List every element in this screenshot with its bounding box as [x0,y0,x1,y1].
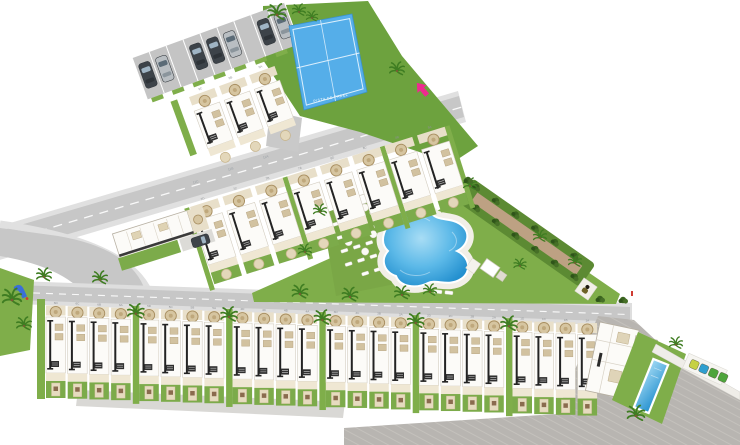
ridge-cap [299,328,305,330]
roof-ridge [49,321,51,369]
stairwell [51,361,59,367]
ridge-cap [91,321,97,323]
garden-table [97,388,102,393]
solarium-table-center [520,325,524,329]
ridge-cap [184,325,190,327]
solarium-table-center [334,319,338,323]
roof-ridge [488,335,490,383]
stairwell [116,363,124,369]
ridge-cap [234,374,240,376]
roof-ridge [143,324,145,372]
garden-table [448,400,453,405]
roof-ridge [422,333,424,381]
terrace-furniture [428,336,436,343]
ridge-cap [327,329,333,331]
stairwell [331,370,339,376]
stairwell [561,378,569,384]
ridge-cap [442,333,448,335]
solarium-table-center [542,326,546,330]
garden-table [190,391,195,396]
terrace-furniture [55,324,63,331]
unit-number: 3B [377,312,381,316]
ridge-cap [47,368,53,370]
ridge-cap [442,381,448,383]
rear-terrace [326,382,346,390]
ridge-cap [206,325,212,327]
terrace-furniture [120,326,128,333]
rear-terrace [139,376,159,384]
ridge-cap [299,376,305,378]
terrace-furniture [285,332,293,339]
rear-terrace [111,375,131,383]
rear-terrace [513,388,533,396]
roof-ridge [537,337,539,385]
garden-table [147,390,152,395]
terrace-furniture [120,336,128,343]
roof-ridge [114,323,116,371]
roof-ridge [351,331,353,379]
solarium-table-center [262,317,266,321]
unit-number: 9A [258,64,264,69]
stairwell [468,375,476,381]
terrace-furniture [450,337,458,344]
terrace-furniture [263,340,271,347]
ridge-cap [486,382,492,384]
ridge-cap [349,378,355,380]
terrace-furniture [148,327,156,334]
terrace-furniture [335,343,343,350]
rear-terrace [204,378,224,386]
garden-table [75,387,80,392]
garden-table [54,387,59,392]
site-plan: 11A11B11C [0,0,740,445]
garden-table [563,403,568,408]
stairwell [303,369,311,375]
terrace-furniture [242,330,250,337]
roof-ridge [236,327,238,375]
stairwell [374,372,382,378]
terrace-furniture [587,342,595,349]
ridge-cap [535,336,541,338]
terrace-furniture [148,337,156,344]
terrace-furniture [357,343,365,350]
garden-table [119,389,124,394]
unit-number: 9B [228,75,233,80]
rear-terrace [254,380,273,388]
terrace-furniture [522,339,530,346]
ridge-cap [371,379,377,381]
ridge-cap [514,335,520,337]
rear-terrace [183,378,203,386]
sun-lounger [445,291,453,295]
ridge-cap [162,372,168,374]
ridge-cap [47,320,53,322]
palm-tree-icon [37,268,51,281]
stairwell [396,372,404,378]
terrace-furniture [400,345,408,352]
solarium-table-center [449,323,453,327]
roof-ridge [93,322,95,370]
garden-table [492,401,497,406]
ridge-cap [464,382,470,384]
ridge-cap [162,324,168,326]
roof-ridge [71,322,73,370]
rear-terrace [391,384,411,392]
ridge-cap [371,331,377,333]
solarium-table-center [564,327,568,331]
site-plan-svg: 11A11B11C [0,0,740,445]
solarium-table-center [75,311,79,315]
unit-number: 1B [564,318,568,322]
rear-terrace [233,379,253,387]
terrace-furniture [170,337,178,344]
ridge-cap [349,330,355,332]
terrace-furniture [450,347,458,354]
solarium-table-center [147,313,151,317]
ridge-cap [256,375,262,377]
terrace-furniture [493,338,501,345]
garden-table [377,397,382,402]
ridge-cap [112,322,118,324]
terrace-furniture [472,338,480,345]
terrace-furniture [285,341,293,348]
garden-table [399,398,404,403]
ridge-cap [514,383,520,385]
terrace-furniture [565,350,573,357]
terrace-furniture [213,339,221,346]
garden-table [305,395,310,400]
terrace-furniture [307,342,315,349]
rear-terrace [556,390,576,398]
garden-table [520,402,525,407]
ridge-cap [486,334,492,336]
roof-ridge [394,332,396,380]
solarium-table-center [427,322,431,326]
ridge-cap [206,373,212,375]
playground-area [0,268,34,356]
ridge-cap [112,370,118,372]
terrace-furniture [192,338,200,345]
rear-terrace [276,381,296,389]
terrace-furniture [565,341,573,348]
terrace-furniture [192,329,200,336]
solarium-table-center [97,311,101,315]
terrace-furniture [98,335,106,342]
row-gap-lawn [413,315,420,413]
roof-ridge [301,329,303,377]
roof-ridge [444,334,446,382]
garden-table [212,392,217,397]
rear-terrace [68,374,88,382]
rear-terrace [46,373,66,381]
ridge-cap [579,386,585,388]
garden-table [355,396,360,401]
stairwell [188,366,196,372]
rear-terrace [534,389,554,397]
terrace-furniture [213,329,221,336]
stairwell [539,377,547,383]
ridge-cap [420,380,426,382]
terrace-furniture [263,331,271,338]
garden-table [585,404,590,409]
row-gap-lawn [133,306,140,404]
ridge-cap [277,328,283,330]
roof-ridge [373,332,375,380]
terrace-furniture [357,334,365,341]
roof-ridge [559,338,561,386]
garden-table [284,394,289,399]
rear-terrace [419,385,439,393]
ridge-cap [557,385,563,387]
red-marker [631,291,633,296]
solarium-table-center [169,314,173,318]
stairwell [166,365,174,371]
terrace-furniture [493,348,501,355]
garden-table [427,399,432,404]
rear-terrace [348,383,368,391]
unit-number: 4B [284,309,288,313]
roof-ridge [516,336,518,384]
roof-ridge [186,326,188,374]
solarium-table-center [190,315,194,319]
terrace-furniture [77,325,85,332]
ridge-cap [141,371,147,373]
solarium-table-center [212,315,216,319]
solarium-table-center [585,328,589,332]
stairwell [424,373,432,379]
ridge-cap [535,384,541,386]
ridge-cap [392,379,398,381]
solarium-table-center [305,318,309,322]
stairwell [353,371,361,377]
roof-ridge [329,330,331,378]
ridge-cap [579,338,585,340]
stairwell [518,376,526,382]
solarium-table-center [355,320,359,324]
garden-table [169,390,174,395]
rear-terrace [441,386,461,394]
row-gap-lawn [319,312,326,410]
terrace-furniture [472,347,480,354]
terrace-furniture [242,340,250,347]
ridge-cap [69,369,75,371]
rear-terrace [161,377,181,385]
ridge-cap [141,323,147,325]
terrace-furniture [400,335,408,342]
stairwell [489,375,497,381]
garden-table [262,393,267,398]
terrace-furniture [307,332,315,339]
ridge-cap [420,332,426,334]
ridge-cap [464,334,470,336]
terrace-furniture [543,340,551,347]
garden-table [470,400,475,405]
garden-table [240,393,245,398]
garden-table [333,396,338,401]
rear-terrace [89,374,109,382]
roof-ridge [279,329,281,377]
roof-ridge [164,325,166,373]
garden-table [542,403,547,408]
roof-ridge [258,328,260,376]
ridge-cap [234,326,240,328]
ridge-cap [91,369,97,371]
stairwell [281,369,289,375]
roof-ridge [208,326,210,374]
solarium-table-center [119,312,123,316]
ridge-cap [327,377,333,379]
stairwell [73,362,81,368]
bush-icon [619,297,628,304]
solarium-table-center [240,316,244,320]
terrace-furniture [378,335,386,342]
ridge-cap [277,376,283,378]
unit-number: 6B [97,302,101,306]
stairwell [446,374,454,380]
unit-number: 5B [191,306,195,310]
ridge-cap [69,321,75,323]
terrace-furniture [55,334,63,341]
stairwell [259,368,267,374]
roof-ridge [466,335,468,383]
rear-terrace [463,387,483,395]
terrace-furniture [428,346,436,353]
terrace-furniture [543,350,551,357]
rear-terrace [369,384,389,392]
stairwell [144,364,152,370]
row-gap-lawn [37,299,45,399]
unit-number: 2B [470,315,474,319]
row-gap-lawn [226,309,233,407]
stairwell [209,366,217,372]
terrace-furniture [77,334,85,341]
ridge-cap [256,327,262,329]
ridge-cap [392,331,398,333]
ridge-cap [557,337,563,339]
solarium-table-center [470,324,474,328]
side-lawn [170,99,196,156]
stairwell [238,367,246,373]
rear-terrace [484,387,504,395]
solarium-table-center [492,324,496,328]
terrace-furniture [98,325,106,332]
row-gap-lawn [506,318,513,416]
ridge-cap [184,373,190,375]
palm-tree-icon [670,337,683,348]
solarium-table-center [54,310,58,314]
stairwell [94,362,102,368]
rear-terrace [298,381,318,389]
terrace-furniture [522,349,530,356]
terrace-furniture [335,333,343,340]
roof-ridge [581,339,583,387]
terrace-furniture [170,328,178,335]
terrace-furniture [378,344,386,351]
unit-number: 9C [198,86,204,91]
solarium-table-center [399,321,403,325]
solarium-table-center [377,321,381,325]
solarium-table-center [284,318,288,322]
